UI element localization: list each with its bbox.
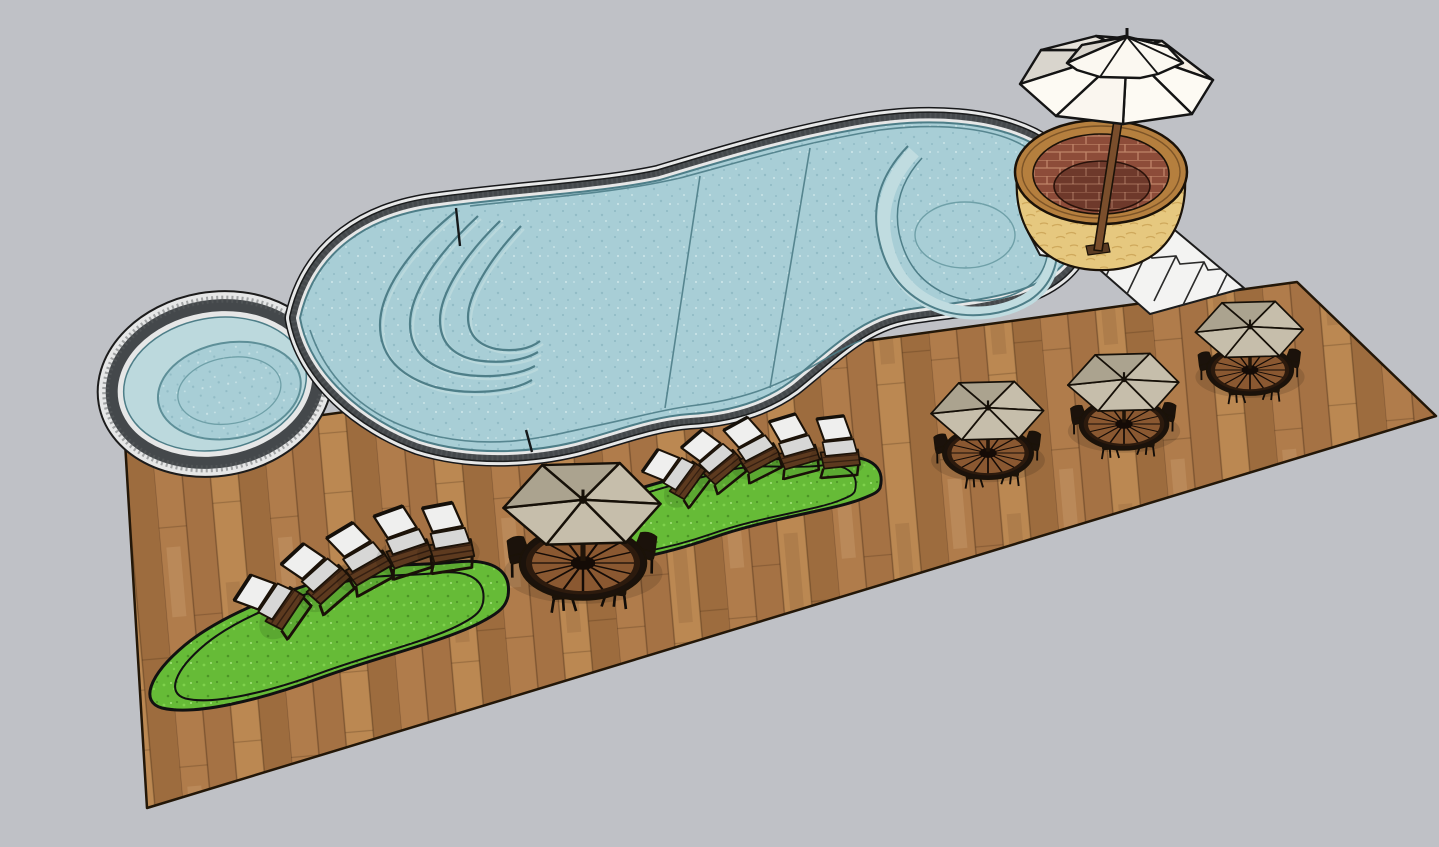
model-viewport[interactable] [0,0,1439,847]
